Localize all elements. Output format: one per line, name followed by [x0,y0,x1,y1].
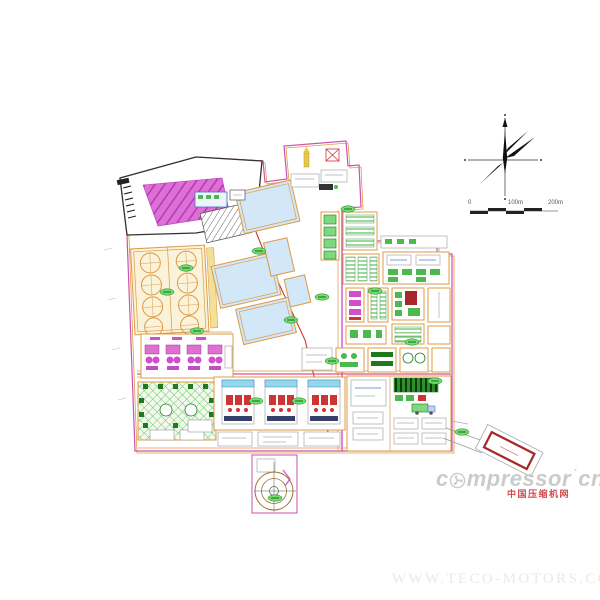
scale-bar: 0 100m 200m [468,200,563,214]
dimension-marks [104,248,126,400]
tank-farm [131,245,218,337]
scale-end-label: 200m [548,200,563,206]
compass-rose-icon [464,114,542,200]
logo-dot: ˙ [572,461,577,487]
fan-icon [449,469,466,495]
logo-tld: cn [578,466,600,492]
logo-subtitle: 中国压缩机网 [507,489,570,499]
circular-tank-extension [252,455,297,513]
admin-grid [347,376,451,451]
module [308,380,340,424]
flare-and-torch-area [291,147,347,190]
digester-equipment-building [141,334,233,378]
blue-small-building [195,192,227,207]
footer-watermark: WWW.TECO-MOTORS.COM [392,571,600,588]
logo-text-prefix: c [436,466,449,492]
scale-mid-label: 100m [508,200,523,206]
cad-site-plan-page: 0 100m 200m c mpressor ˙ cn 中国压缩机网 WWW.T… [0,0,600,600]
site-plan-drawing: 0 100m 200m [0,0,600,600]
scale-zero-label: 0 [468,200,472,206]
